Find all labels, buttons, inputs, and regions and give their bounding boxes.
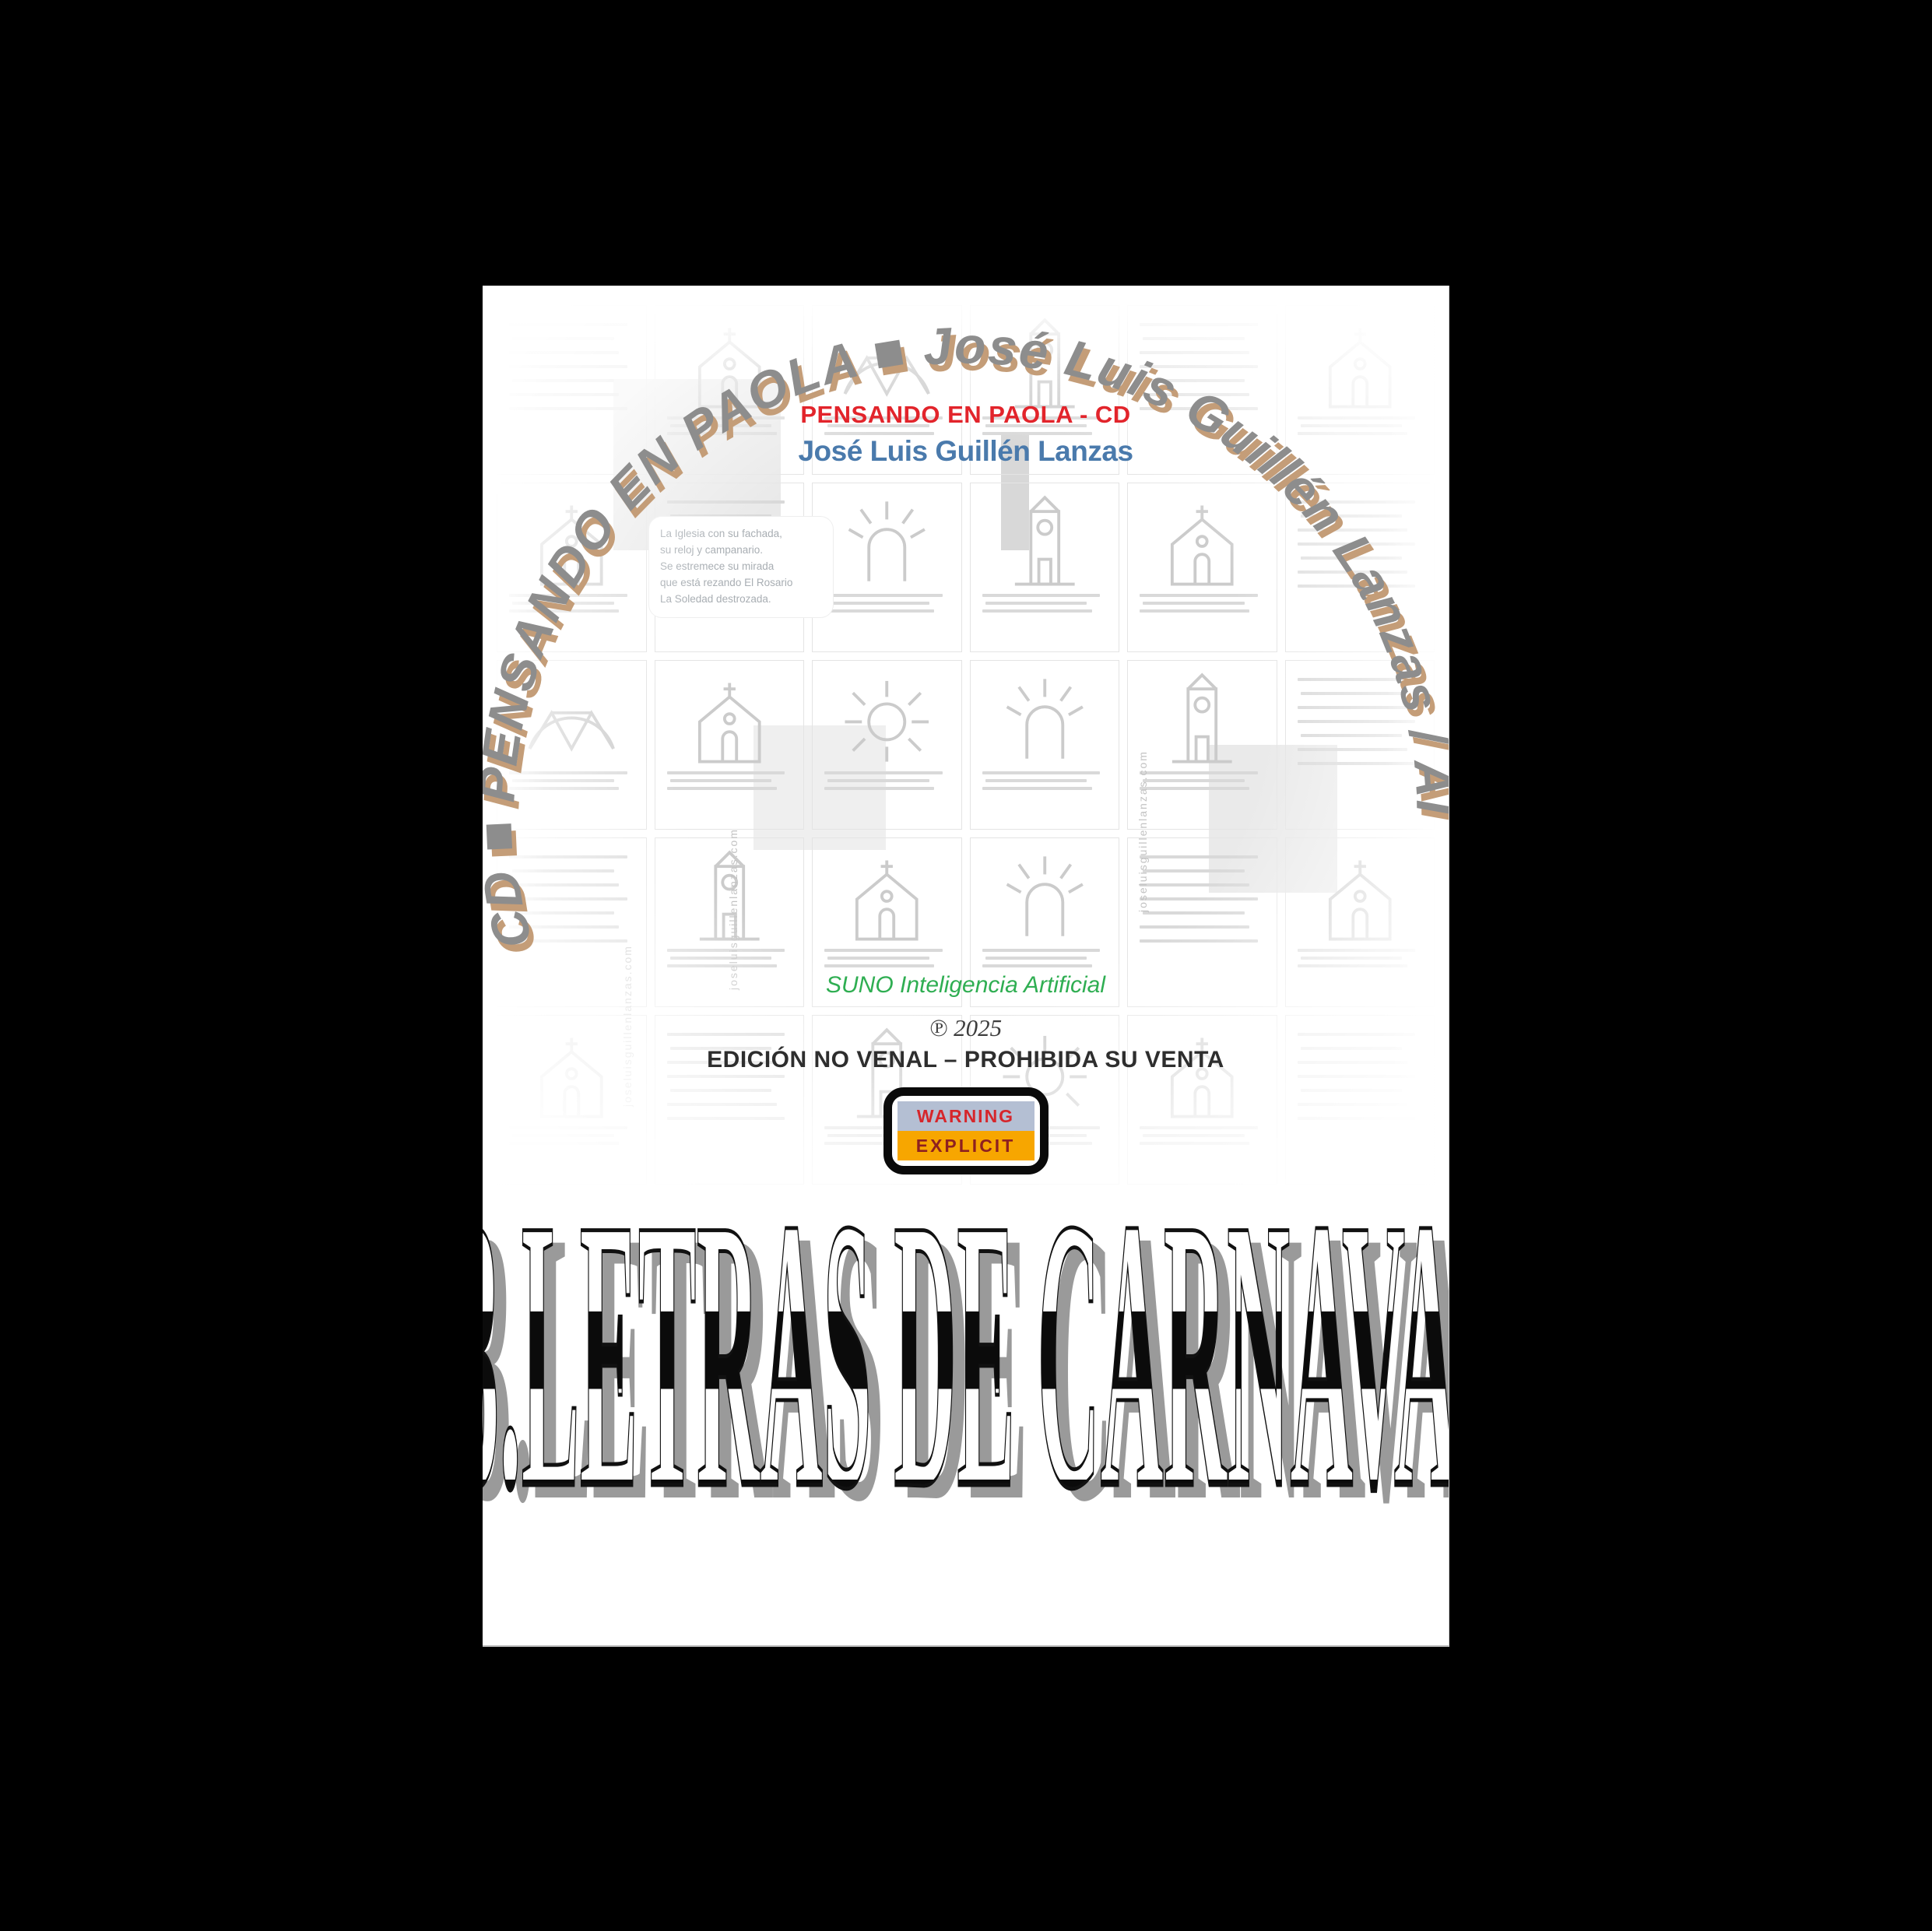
- track-title-art: 13.LETRAS DE CARNAVAL 13.LETRAS DE CARNA…: [483, 1187, 1449, 1510]
- track-title: 13.LETRAS DE CARNAVAL: [483, 1187, 1449, 1510]
- explicit-advisory-badge: WARNING EXPLICIT: [883, 1087, 1049, 1174]
- artist-name: José Luis Guillén Lanzas: [483, 435, 1449, 468]
- ai-credit: SUNO Inteligencia Artificial: [483, 972, 1449, 999]
- advisory-warning-label: WARNING: [898, 1101, 1034, 1131]
- black-backdrop: joseluisguillenlanzas.com joseluisguille…: [0, 0, 1932, 1931]
- advisory-explicit-label: EXPLICIT: [898, 1131, 1034, 1160]
- phonogram-year: ℗ 2025: [483, 1014, 1449, 1042]
- edition-notice: EDICIÓN NO VENAL – PROHIBIDA SU VENTA: [483, 1047, 1449, 1073]
- album-title: PENSANDO EN PAOLA - CD: [483, 401, 1449, 429]
- cd-cover-page: joseluisguillenlanzas.com joseluisguille…: [483, 286, 1449, 1647]
